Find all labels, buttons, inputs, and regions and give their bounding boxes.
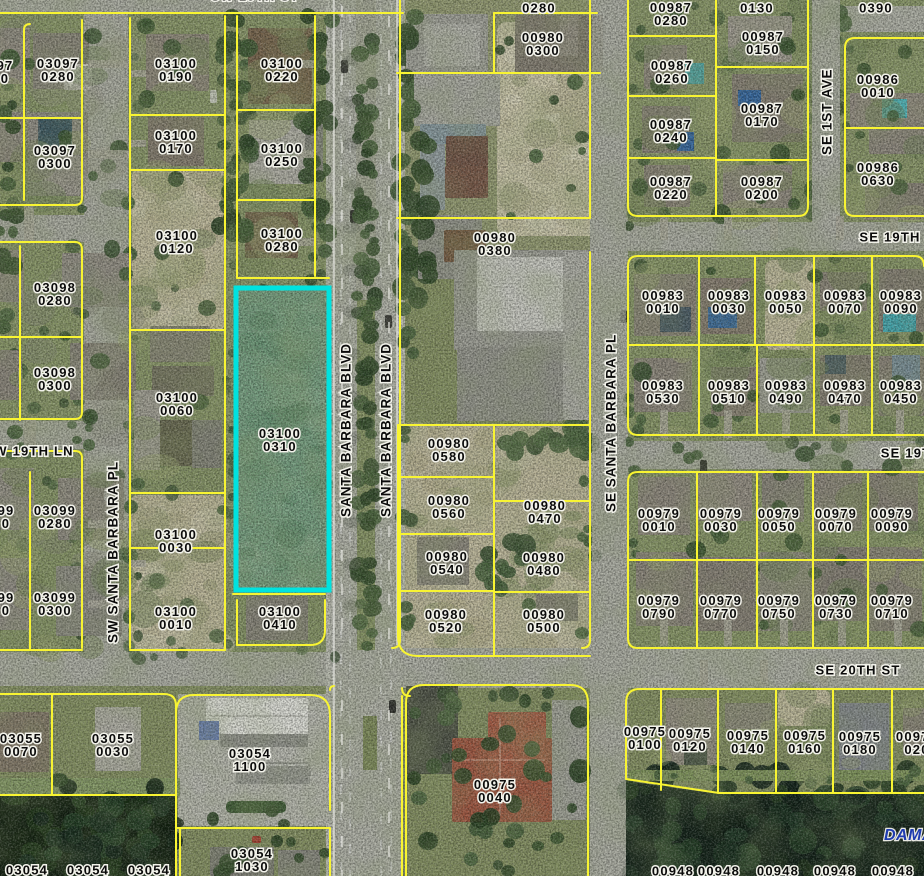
svg-text:009800480: 009800480 bbox=[523, 550, 565, 578]
svg-text:009800580: 009800580 bbox=[428, 436, 470, 464]
svg-text:009800500: 009800500 bbox=[523, 607, 565, 635]
svg-text:SANTA BARBARA BLVD: SANTA BARBARA BLVD bbox=[339, 343, 354, 517]
svg-text:030980280: 030980280 bbox=[34, 280, 76, 308]
svg-text:009750120: 009750120 bbox=[669, 726, 711, 754]
svg-text:009790050: 009790050 bbox=[758, 506, 800, 534]
svg-text:031000190: 031000190 bbox=[155, 56, 197, 84]
svg-text:009830010: 009830010 bbox=[642, 288, 684, 316]
svg-text:SE 20TH ST: SE 20TH ST bbox=[816, 663, 901, 678]
svg-text:031000220: 031000220 bbox=[261, 56, 303, 84]
svg-text:031000310: 031000310 bbox=[259, 426, 301, 454]
svg-text:W 19TH LN: W 19TH LN bbox=[0, 444, 74, 459]
svg-text:0130: 0130 bbox=[740, 1, 774, 16]
svg-text:009800470: 009800470 bbox=[524, 498, 566, 526]
svg-text:030970280: 030970280 bbox=[37, 56, 79, 84]
svg-text:009870280: 009870280 bbox=[650, 0, 692, 28]
svg-text:009870200: 009870200 bbox=[741, 174, 783, 202]
svg-text:030541100: 030541100 bbox=[229, 746, 271, 774]
svg-text:00948: 00948 bbox=[872, 864, 914, 876]
svg-text:009800380: 009800380 bbox=[474, 230, 516, 258]
svg-text:009830050: 009830050 bbox=[765, 288, 807, 316]
svg-text:009790710: 009790710 bbox=[871, 593, 913, 621]
svg-text:009830030: 009830030 bbox=[708, 288, 750, 316]
svg-text:031000170: 031000170 bbox=[155, 128, 197, 156]
svg-text:009830510: 009830510 bbox=[708, 378, 750, 406]
svg-text:009830470: 009830470 bbox=[824, 378, 866, 406]
svg-text:009750100: 009750100 bbox=[624, 724, 666, 752]
svg-text:009790770: 009790770 bbox=[700, 593, 742, 621]
svg-text:009870150: 009870150 bbox=[742, 29, 784, 57]
svg-text:03054: 03054 bbox=[67, 863, 109, 876]
svg-text:009790730: 009790730 bbox=[815, 593, 857, 621]
svg-text:031000280: 031000280 bbox=[261, 226, 303, 254]
svg-text:009830530: 009830530 bbox=[642, 378, 684, 406]
svg-text:031000060: 031000060 bbox=[156, 390, 198, 418]
svg-text:00948: 00948 bbox=[652, 864, 694, 876]
svg-text:SW SANTA BARBARA PL: SW SANTA BARBARA PL bbox=[106, 461, 121, 643]
svg-text:SE SANTA BARBARA PL: SE SANTA BARBARA PL bbox=[604, 334, 619, 512]
svg-text:030541030: 030541030 bbox=[231, 846, 273, 874]
svg-text:009870220: 009870220 bbox=[650, 174, 692, 202]
svg-text:00948: 00948 bbox=[757, 864, 799, 876]
svg-text:SW 19TH ST: SW 19TH ST bbox=[211, 0, 300, 4]
svg-text:009870170: 009870170 bbox=[741, 101, 783, 129]
svg-text:SE 19TH: SE 19TH bbox=[859, 230, 920, 245]
svg-text:03054: 03054 bbox=[6, 863, 48, 876]
svg-text:031000410: 031000410 bbox=[259, 604, 301, 632]
svg-text:0280: 0280 bbox=[522, 1, 556, 16]
svg-text:031000030: 031000030 bbox=[155, 527, 197, 555]
svg-text:030550070: 030550070 bbox=[0, 731, 42, 759]
svg-text:009790790: 009790790 bbox=[638, 593, 680, 621]
svg-text:009790750: 009790750 bbox=[758, 593, 800, 621]
svg-text:009790070: 009790070 bbox=[815, 506, 857, 534]
svg-text:009750160: 009750160 bbox=[784, 728, 826, 756]
svg-text:009830070: 009830070 bbox=[824, 288, 866, 316]
svg-text:SE 19T: SE 19T bbox=[881, 446, 924, 461]
svg-text:SE 1ST AVE: SE 1ST AVE bbox=[820, 68, 835, 155]
svg-text:031000120: 031000120 bbox=[156, 228, 198, 256]
svg-text:0390: 0390 bbox=[859, 1, 893, 16]
svg-text:009830450: 009830450 bbox=[880, 378, 922, 406]
svg-text:009830090: 009830090 bbox=[880, 288, 922, 316]
svg-text:009790030: 009790030 bbox=[700, 506, 742, 534]
svg-text:030970300: 030970300 bbox=[34, 143, 76, 171]
svg-text:009750180: 009750180 bbox=[839, 729, 881, 757]
svg-text:030980300: 030980300 bbox=[34, 365, 76, 393]
svg-text:009860010: 009860010 bbox=[857, 72, 899, 100]
svg-text:DAMAS: DAMAS bbox=[884, 827, 924, 844]
svg-text:00948: 00948 bbox=[698, 864, 740, 876]
svg-text:SANTA BARBARA BLVD: SANTA BARBARA BLVD bbox=[379, 343, 394, 517]
svg-text:009860630: 009860630 bbox=[857, 160, 899, 188]
svg-text:009790010: 009790010 bbox=[638, 506, 680, 534]
svg-text:009870240: 009870240 bbox=[650, 117, 692, 145]
svg-text:009800520: 009800520 bbox=[425, 607, 467, 635]
svg-text:030990300: 030990300 bbox=[34, 590, 76, 618]
svg-text:031000250: 031000250 bbox=[261, 141, 303, 169]
svg-text:009750140: 009750140 bbox=[727, 728, 769, 756]
svg-text:009800300: 009800300 bbox=[522, 30, 564, 58]
svg-text:009790090: 009790090 bbox=[871, 506, 913, 534]
svg-text:031000010: 031000010 bbox=[155, 604, 197, 632]
svg-text:030990280: 030990280 bbox=[34, 503, 76, 531]
svg-text:03054: 03054 bbox=[128, 863, 170, 876]
svg-text:009750040: 009750040 bbox=[474, 777, 516, 805]
svg-text:009800540: 009800540 bbox=[426, 549, 468, 577]
svg-text:009800560: 009800560 bbox=[428, 493, 470, 521]
svg-text:009830490: 009830490 bbox=[765, 378, 807, 406]
svg-text:00948: 00948 bbox=[814, 864, 856, 876]
svg-text:009870260: 009870260 bbox=[651, 58, 693, 86]
svg-text:030550030: 030550030 bbox=[92, 731, 134, 759]
